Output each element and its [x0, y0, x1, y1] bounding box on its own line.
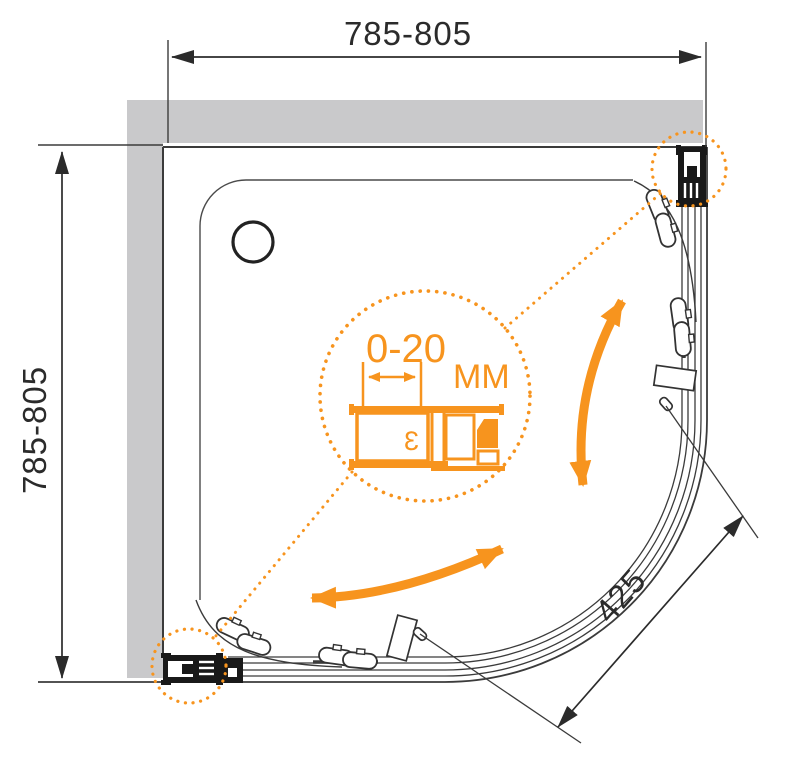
corner-profile-top-right	[676, 145, 708, 207]
opening-dimension-line	[558, 516, 743, 727]
adjustment-range-label: 0-20	[366, 327, 446, 371]
profile-cross-section-icon: 3	[349, 404, 505, 471]
slide-arrow-right-icon	[581, 301, 622, 485]
profile-filled-block	[477, 419, 498, 448]
slide-arrow-bottom-icon	[312, 549, 502, 598]
drain-icon	[233, 222, 273, 262]
depth-dimension-label: 785-805	[16, 366, 53, 494]
technical-drawing-canvas: 785-805 785-805 425 0-20 MM	[0, 0, 800, 783]
corner-profile-bottom-left	[161, 653, 243, 685]
detail-leader-bottom-left	[215, 472, 352, 637]
width-dimension-label: 785-805	[344, 15, 472, 52]
adjustment-unit-label: MM	[453, 358, 510, 396]
roller	[654, 211, 681, 249]
shower-enclosure-diagram: 785-805 785-805 425 0-20 MM	[0, 0, 800, 783]
roller	[674, 321, 696, 357]
door-knob-right	[658, 396, 673, 412]
dimension-door-opening: 425	[420, 406, 758, 743]
wall-top	[127, 100, 703, 143]
shower-tray	[200, 180, 633, 600]
opening-leader-right	[666, 406, 758, 538]
detail-callout: 0-20 MM 3	[152, 132, 726, 703]
door-handle-right	[654, 365, 696, 390]
profile-clip-glyph: 3	[404, 426, 419, 456]
detail-leader-top-right	[505, 193, 661, 328]
wall-left	[127, 100, 163, 678]
door-handle-bottom	[387, 615, 417, 661]
